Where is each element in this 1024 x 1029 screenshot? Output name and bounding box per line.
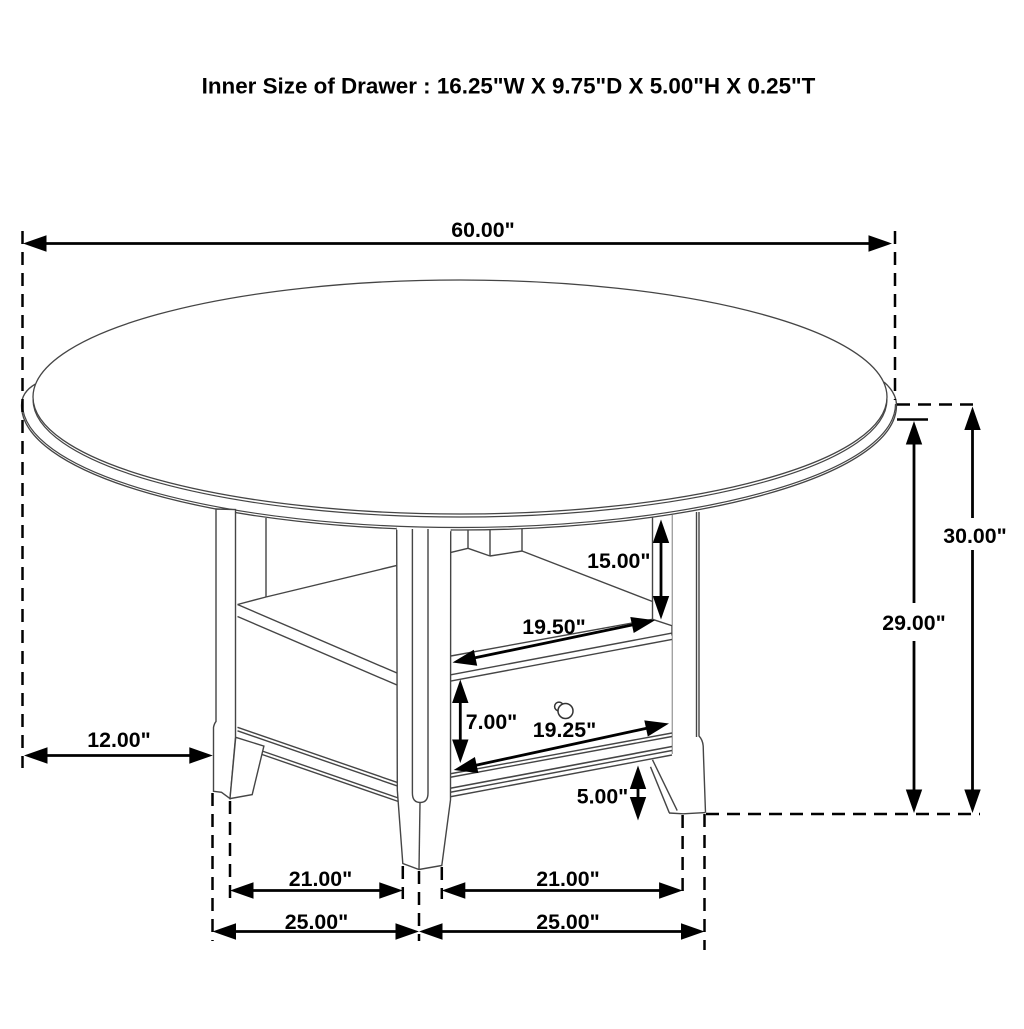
- svg-text:12.00": 12.00": [87, 728, 150, 752]
- svg-text:29.00": 29.00": [882, 611, 945, 635]
- svg-text:7.00": 7.00": [466, 710, 518, 734]
- svg-text:Inner Size of Drawer : 16.25"W: Inner Size of Drawer : 16.25"W X 9.75"D …: [202, 74, 816, 99]
- svg-text:21.00": 21.00": [289, 867, 352, 891]
- svg-text:60.00": 60.00": [451, 218, 514, 242]
- svg-text:25.00": 25.00": [536, 910, 599, 934]
- svg-text:25.00": 25.00": [285, 910, 348, 934]
- svg-text:19.25": 19.25": [533, 718, 596, 742]
- svg-text:30.00": 30.00": [943, 524, 1006, 548]
- svg-text:5.00": 5.00": [577, 785, 629, 809]
- svg-text:19.50": 19.50": [522, 615, 585, 639]
- svg-text:15.00": 15.00": [587, 549, 650, 573]
- svg-text:21.00": 21.00": [536, 867, 599, 891]
